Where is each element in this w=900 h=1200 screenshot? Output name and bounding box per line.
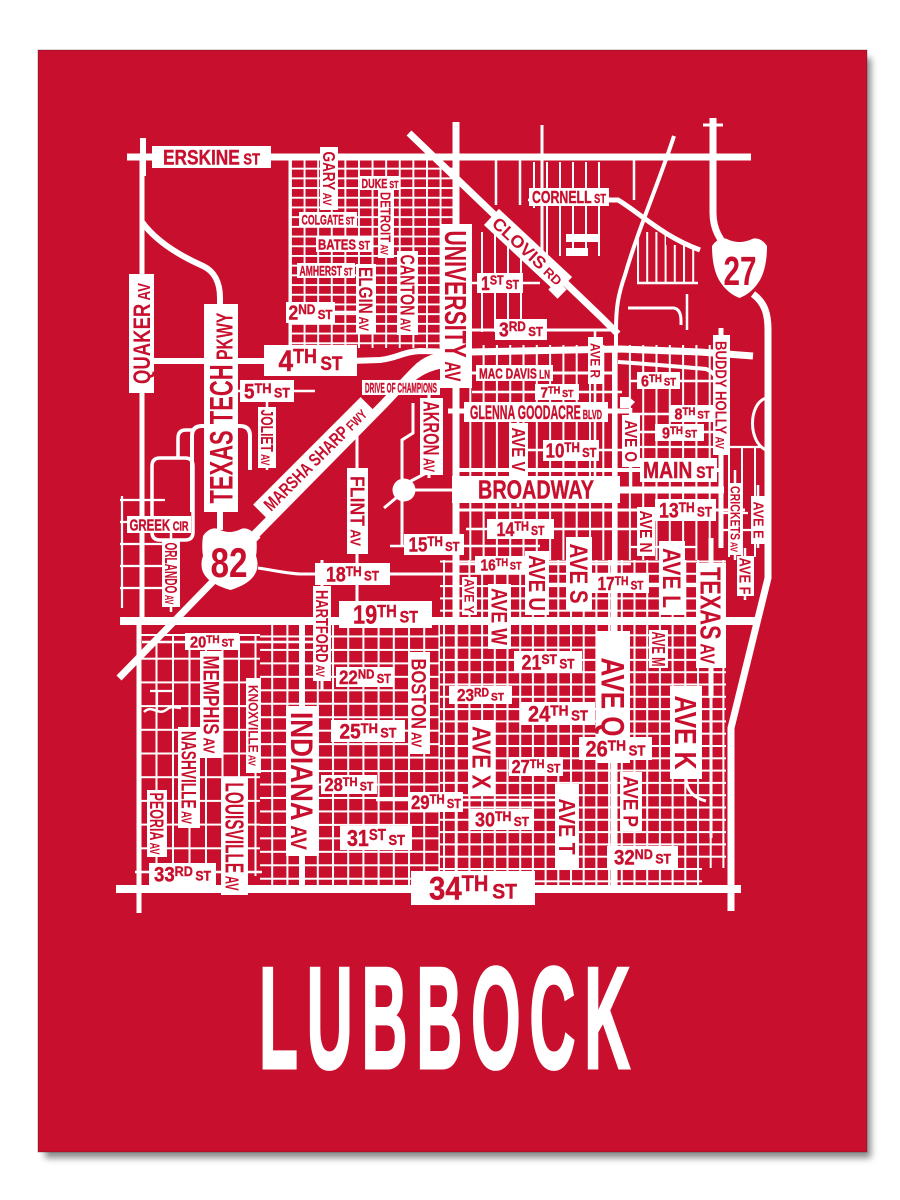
svg-text:DRIVE OF CHAMPIONS: DRIVE OF CHAMPIONS xyxy=(365,381,437,397)
svg-text:AVE S: AVE S xyxy=(564,544,591,604)
svg-text:AVE N: AVE N xyxy=(636,511,655,553)
svg-text:82: 82 xyxy=(211,539,248,586)
svg-text:AVE T: AVE T xyxy=(554,799,580,855)
svg-text:LUBBOCK: LUBBOCK xyxy=(259,937,639,1099)
svg-text:AVE O: AVE O xyxy=(621,420,640,462)
svg-text:AVE K: AVE K xyxy=(668,696,702,770)
svg-text:AVE Q: AVE Q xyxy=(594,658,630,737)
svg-text:AVE M: AVE M xyxy=(648,632,668,667)
svg-text:CORNELL ST: CORNELL ST xyxy=(532,188,606,207)
svg-text:BROADWAY: BROADWAY xyxy=(478,477,594,505)
svg-text:BUDDY HOLLY AV: BUDDY HOLLY AV xyxy=(712,341,730,449)
svg-text:BATES ST: BATES ST xyxy=(318,236,371,253)
svg-text:AVE V: AVE V xyxy=(508,428,528,472)
svg-text:LOUISVILLE AV: LOUISVILLE AV xyxy=(219,783,247,891)
svg-text:AVE P: AVE P xyxy=(619,776,642,827)
svg-text:GREEK CIR: GREEK CIR xyxy=(130,516,189,534)
svg-text:PEORIA AV: PEORIA AV xyxy=(145,793,166,856)
svg-text:AVE F: AVE F xyxy=(736,558,754,595)
svg-text:AVE L: AVE L xyxy=(657,548,684,608)
svg-text:COLGATE ST: COLGATE ST xyxy=(302,213,355,229)
svg-text:AVE Y: AVE Y xyxy=(460,579,476,614)
svg-text:AVE E: AVE E xyxy=(750,502,767,539)
svg-text:ELGIN AV: ELGIN AV xyxy=(354,267,375,332)
svg-text:27: 27 xyxy=(724,248,757,294)
svg-text:AVE U: AVE U xyxy=(524,555,550,611)
svg-text:AVE W: AVE W xyxy=(487,588,512,645)
svg-text:AVE X: AVE X xyxy=(466,726,494,789)
svg-text:AMHERST ST: AMHERST ST xyxy=(300,264,353,280)
svg-text:AVE R: AVE R xyxy=(586,343,602,378)
svg-text:MAC DAVIS LN: MAC DAVIS LN xyxy=(479,365,550,382)
svg-text:GLENNA GOODACRE BLVD: GLENNA GOODACRE BLVD xyxy=(470,403,602,424)
